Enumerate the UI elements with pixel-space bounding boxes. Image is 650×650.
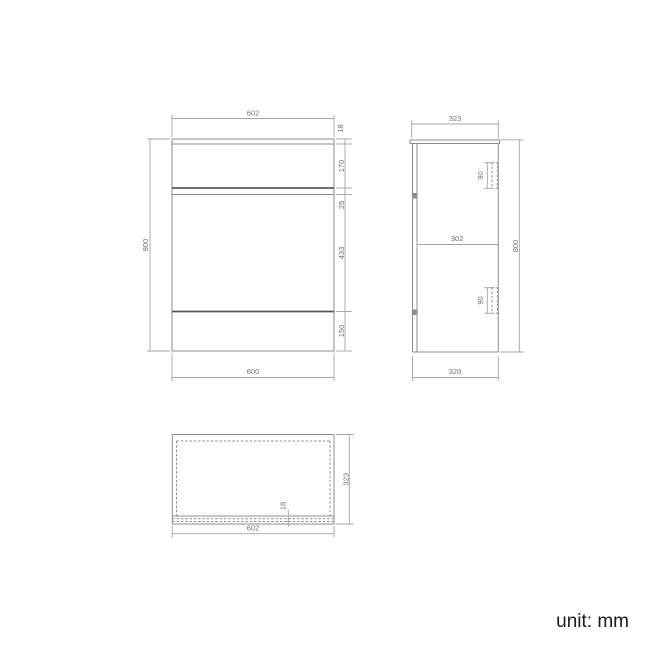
dim-side-handle-lower: 90	[476, 296, 485, 304]
front-cabinet-outline	[172, 139, 334, 351]
top-worktop-outline	[172, 435, 334, 525]
front-dim-top-width: 602	[172, 109, 334, 138]
dim-front-gap-height: 25	[337, 201, 346, 209]
top-dim-panel-thickness: 18	[279, 502, 292, 527]
dim-front-door-height: 433	[337, 247, 346, 260]
front-view: 602 800 18 170 25 433 150	[141, 109, 352, 382]
dim-side-internal-depth: 302	[451, 234, 464, 243]
front-dim-bottom-width: 600	[172, 353, 334, 381]
dim-front-height: 800	[141, 239, 150, 252]
technical-drawing-page: 602 800 18 170 25 433 150	[0, 0, 650, 650]
unit-label: unit: mm	[556, 611, 629, 632]
dim-front-width-top: 602	[247, 109, 260, 118]
side-dim-internal-depth: 302	[417, 234, 498, 248]
dim-side-depth-top: 323	[449, 114, 462, 123]
top-view: 18 323 602	[172, 435, 353, 538]
side-view: 90 90 302 323 800	[410, 114, 524, 381]
front-dim-height: 800	[141, 139, 170, 351]
side-dim-handle-lower: 90	[476, 288, 492, 314]
side-dim-height: 800	[500, 140, 524, 352]
top-dim-depth: 323	[336, 435, 354, 525]
top-dim-width: 602	[172, 524, 334, 538]
dim-front-width-bottom: 600	[247, 367, 260, 376]
dim-front-drawer-height: 170	[337, 160, 346, 173]
dim-top-depth: 323	[341, 473, 350, 486]
dim-top-width: 602	[247, 524, 260, 533]
side-dim-top-depth: 323	[412, 114, 499, 138]
dim-side-handle-upper: 90	[476, 171, 485, 179]
dim-top-panel-thickness: 18	[279, 502, 288, 510]
side-dim-handle-upper: 90	[476, 163, 492, 189]
side-dim-bottom-depth: 320	[413, 356, 499, 381]
dim-front-plinth-height: 150	[337, 325, 346, 338]
dim-front-top-thickness: 18	[336, 124, 345, 132]
side-handle-lower-hidden	[492, 288, 498, 314]
side-front-notch-upper	[412, 193, 418, 199]
side-worktop	[410, 140, 500, 144]
front-dim-section-chain: 18 170 25 433 150	[336, 124, 352, 351]
vanity-unit-drawing: 602 800 18 170 25 433 150	[0, 0, 650, 650]
dim-side-depth-bottom: 320	[449, 367, 462, 376]
side-handle-upper-hidden	[492, 163, 498, 189]
dim-side-height: 800	[511, 240, 520, 253]
side-front-notch-lower	[412, 310, 418, 316]
